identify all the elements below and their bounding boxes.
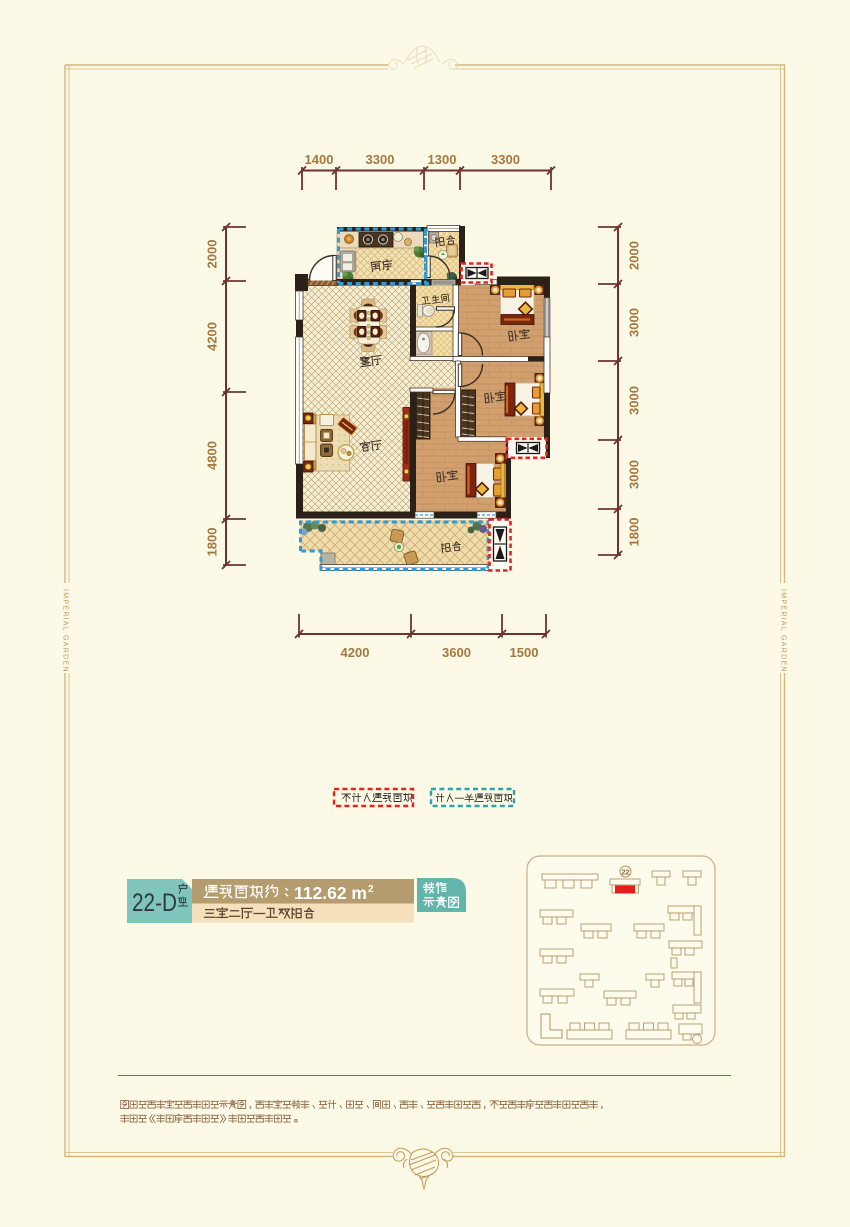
- svg-text:3300: 3300: [366, 152, 395, 167]
- svg-text:3000: 3000: [627, 460, 642, 489]
- svg-text:1400: 1400: [305, 152, 334, 167]
- svg-text:1800: 1800: [627, 518, 642, 547]
- svg-text:3600: 3600: [442, 645, 471, 660]
- svg-text:22: 22: [621, 868, 629, 877]
- svg-text:3000: 3000: [627, 386, 642, 415]
- svg-text:2: 2: [368, 884, 374, 895]
- svg-text:1500: 1500: [510, 645, 539, 660]
- svg-text:2000: 2000: [205, 240, 220, 269]
- svg-text:3000: 3000: [627, 308, 642, 337]
- svg-text:4200: 4200: [341, 645, 370, 660]
- svg-text:22-D: 22-D: [132, 889, 177, 917]
- svg-text:IMPERIAL GARDEN: IMPERIAL GARDEN: [780, 589, 787, 673]
- svg-text:2000: 2000: [627, 241, 642, 270]
- svg-text:IMPERIAL GARDEN: IMPERIAL GARDEN: [62, 589, 69, 673]
- svg-text:4800: 4800: [205, 441, 220, 470]
- svg-text:1300: 1300: [428, 152, 457, 167]
- svg-text:1800: 1800: [205, 528, 220, 557]
- svg-text:4200: 4200: [205, 322, 220, 351]
- svg-text:3300: 3300: [491, 152, 520, 167]
- svg-text:112.62 m: 112.62 m: [294, 883, 367, 903]
